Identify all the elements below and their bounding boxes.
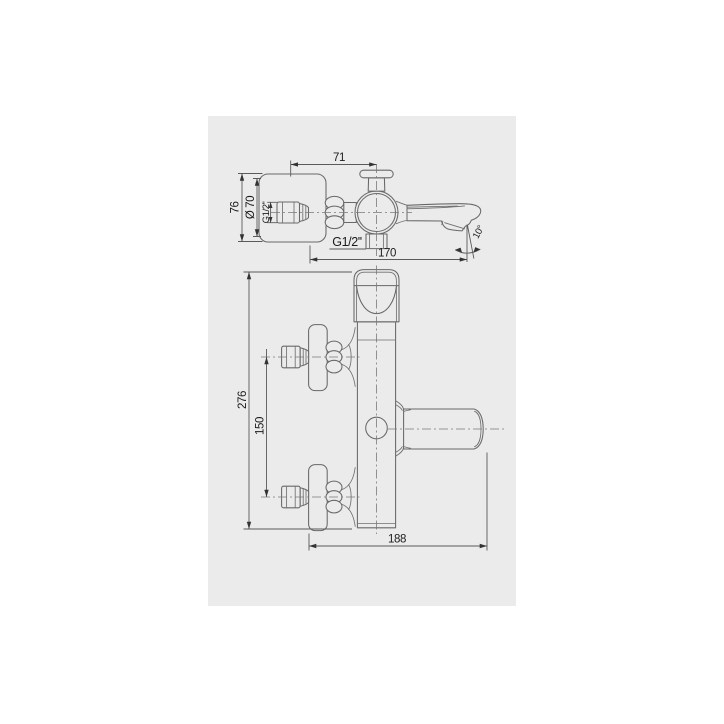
dim-label-dia70: Ø 70 — [245, 196, 257, 219]
dim-outlet-thread-g12: G1/2'' — [330, 235, 367, 249]
dim-label-188: 188 — [388, 534, 406, 546]
dim-label-71: 71 — [333, 152, 345, 164]
upper-escutcheon — [309, 325, 328, 391]
spout-lever-front — [396, 401, 484, 456]
dim-label-76: 76 — [230, 202, 242, 214]
dim-label-150: 150 — [255, 417, 267, 435]
technical-drawing: 71 76 Ø 70 G1/2'' G1/2'' — [0, 0, 724, 724]
lower-escutcheon — [309, 465, 328, 531]
page: 71 76 Ø 70 G1/2'' G1/2'' — [0, 0, 724, 724]
dim-label-g12-inlet: G1/2'' — [261, 201, 272, 223]
dim-label-170: 170 — [378, 248, 396, 260]
dim-label-g12-outlet: G1/2'' — [332, 235, 361, 249]
dim-label-276: 276 — [237, 391, 249, 409]
